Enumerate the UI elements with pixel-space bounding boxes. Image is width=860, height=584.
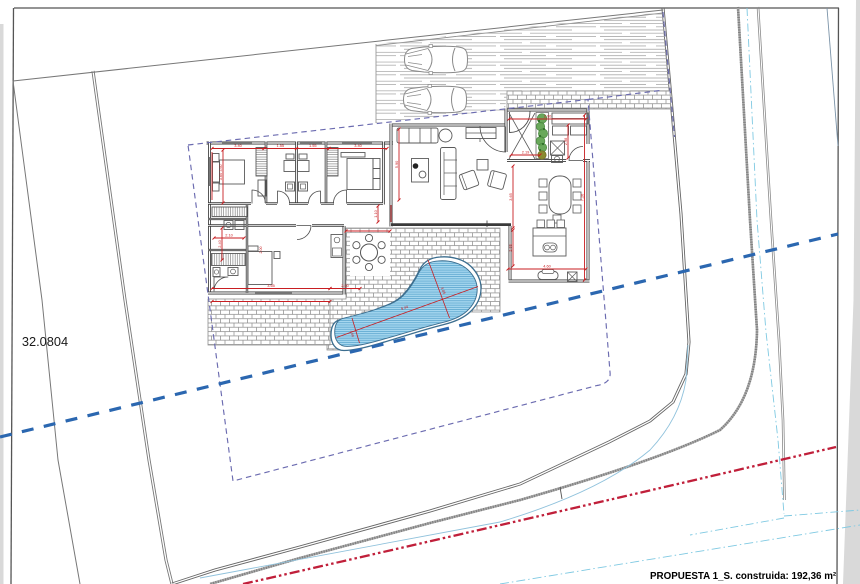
svg-text:1.55: 1.55 (276, 143, 284, 148)
svg-text:1.10: 1.10 (373, 209, 378, 217)
svg-text:2.40: 2.40 (217, 239, 222, 247)
svg-text:4.60: 4.60 (543, 264, 551, 269)
svg-text:3.40: 3.40 (234, 143, 242, 148)
svg-text:1.55: 1.55 (309, 143, 317, 148)
svg-text:2.10: 2.10 (225, 233, 233, 238)
svg-text:5.90: 5.90 (394, 160, 399, 168)
svg-text:3.65: 3.65 (267, 283, 275, 288)
svg-text:3.65: 3.65 (508, 193, 513, 201)
svg-text:2.19: 2.19 (522, 150, 530, 155)
svg-text:3.55: 3.55 (508, 244, 513, 252)
svg-text:3.40: 3.40 (354, 143, 362, 148)
svg-text:7.26: 7.26 (579, 194, 584, 202)
svg-text:32.0804: 32.0804 (22, 334, 68, 349)
svg-text:PROPUESTA 1_S. construida: 192: PROPUESTA 1_S. construida: 192,36 m² (650, 571, 837, 582)
svg-text:3.60: 3.60 (219, 165, 223, 172)
svg-text:3.60: 3.60 (218, 172, 223, 180)
svg-text:2.00: 2.00 (259, 247, 263, 254)
svg-text:2.90: 2.90 (544, 114, 552, 119)
svg-text:2.98: 2.98 (563, 138, 568, 146)
svg-text:2.00: 2.00 (341, 283, 349, 288)
